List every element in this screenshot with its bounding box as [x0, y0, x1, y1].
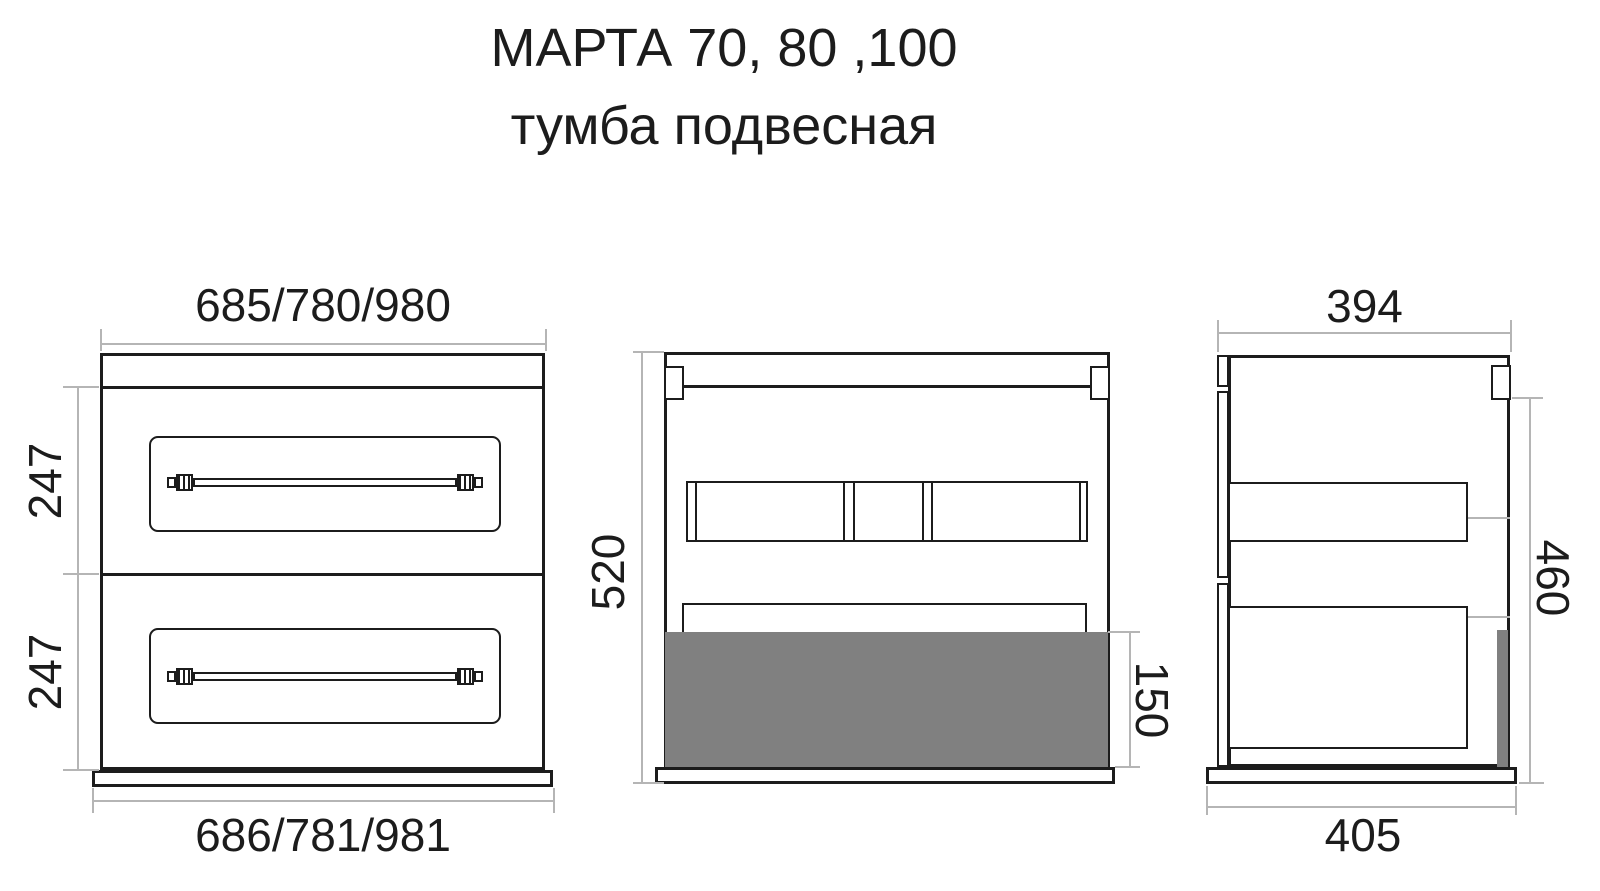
section-height-dim-line	[641, 352, 643, 784]
front-drawer2-dim-label: 247	[22, 624, 68, 720]
section-panel-dim-tick-top	[1108, 631, 1140, 633]
drawer2-handle-bar	[193, 672, 457, 681]
front-bottom-dim-tick-left	[92, 788, 94, 813]
section-plinth	[655, 767, 1115, 784]
front-drawer-divider-line	[100, 573, 545, 576]
side-plinth	[1206, 767, 1517, 784]
front-plinth	[92, 770, 553, 787]
section-slide-assembly	[686, 481, 1088, 542]
front-top-dim-tick-right	[545, 329, 547, 351]
side-height-dim-label: 460	[1530, 530, 1576, 626]
side-bottom-dim-tick-left	[1206, 786, 1208, 815]
side-drawer2-box	[1228, 606, 1468, 749]
side-top-dim-line	[1217, 332, 1512, 334]
front-top-dim-label: 685/780/980	[123, 282, 523, 328]
drawer2-handle-right-ferrule	[457, 668, 474, 685]
section-assembly-divider-3	[853, 483, 855, 540]
section-height-dim-tick-bottom	[633, 782, 664, 784]
section-panel-dim-label: 150	[1129, 652, 1175, 748]
drawer2-handle-right-cap	[474, 671, 483, 682]
front-left-dim-line	[77, 387, 79, 771]
side-bottom-dim-tick-right	[1515, 786, 1517, 815]
section-wall-bracket-left	[664, 366, 684, 400]
section-assembly-divider-5	[931, 483, 933, 540]
side-top-dim-label: 394	[1217, 283, 1512, 329]
drawer2-handle-left-cap	[167, 671, 176, 682]
front-top-dim-line	[100, 343, 547, 345]
section-gray-bottom-panel	[665, 632, 1108, 767]
front-left-dim-tick-top	[63, 386, 99, 388]
front-top-band-line	[100, 386, 545, 389]
front-drawer1-dim-label: 247	[22, 433, 68, 529]
section-top-rail-line	[682, 385, 1092, 388]
drawer2-handle-left-ferrule	[176, 668, 193, 685]
drawer1-handle-bar	[193, 478, 457, 487]
side-drawer2-leader-line	[1468, 616, 1510, 618]
side-wall-bracket	[1491, 365, 1511, 400]
front-left-dim-tick-mid	[63, 573, 99, 575]
side-drawer1-box	[1228, 482, 1468, 542]
front-top-dim-tick-left	[100, 329, 102, 351]
section-lower-drawer-edge	[682, 603, 1087, 635]
section-assembly-divider-4	[922, 483, 924, 540]
drawer1-handle-left-ferrule	[176, 474, 193, 491]
side-gray-panel-edge	[1497, 630, 1508, 767]
drawing-title-line1: МАРТА 70, 80 ,100	[374, 18, 1074, 78]
section-wall-bracket-right	[1090, 366, 1110, 400]
drawing-canvas: МАРТА 70, 80 ,100 тумба подвесная 685/78…	[0, 0, 1600, 891]
side-height-dim-tick-top	[1512, 397, 1543, 399]
front-bottom-dim-line	[92, 800, 555, 802]
section-panel-dim-tick-bottom	[1115, 766, 1140, 768]
section-assembly-divider-6	[1079, 483, 1081, 540]
front-left-dim-tick-bottom	[63, 769, 99, 771]
side-drawer1-leader-line	[1468, 517, 1510, 519]
section-height-dim-label: 520	[585, 524, 631, 620]
section-height-dim-tick-top	[633, 351, 664, 353]
drawer1-handle-right-cap	[474, 477, 483, 488]
side-bottom-dim-label: 405	[1213, 812, 1513, 858]
drawer1-handle-left-cap	[167, 477, 176, 488]
drawer1-handle-right-ferrule	[457, 474, 474, 491]
front-bottom-dim-label: 686/781/981	[123, 812, 523, 858]
side-height-dim-tick-bottom	[1519, 782, 1544, 784]
front-bottom-dim-tick-right	[553, 788, 555, 813]
side-bottom-dim-line	[1206, 806, 1517, 808]
drawing-title-line2: тумба подвесная	[374, 96, 1074, 156]
section-assembly-divider-2	[843, 483, 845, 540]
section-assembly-divider-1	[695, 483, 697, 540]
